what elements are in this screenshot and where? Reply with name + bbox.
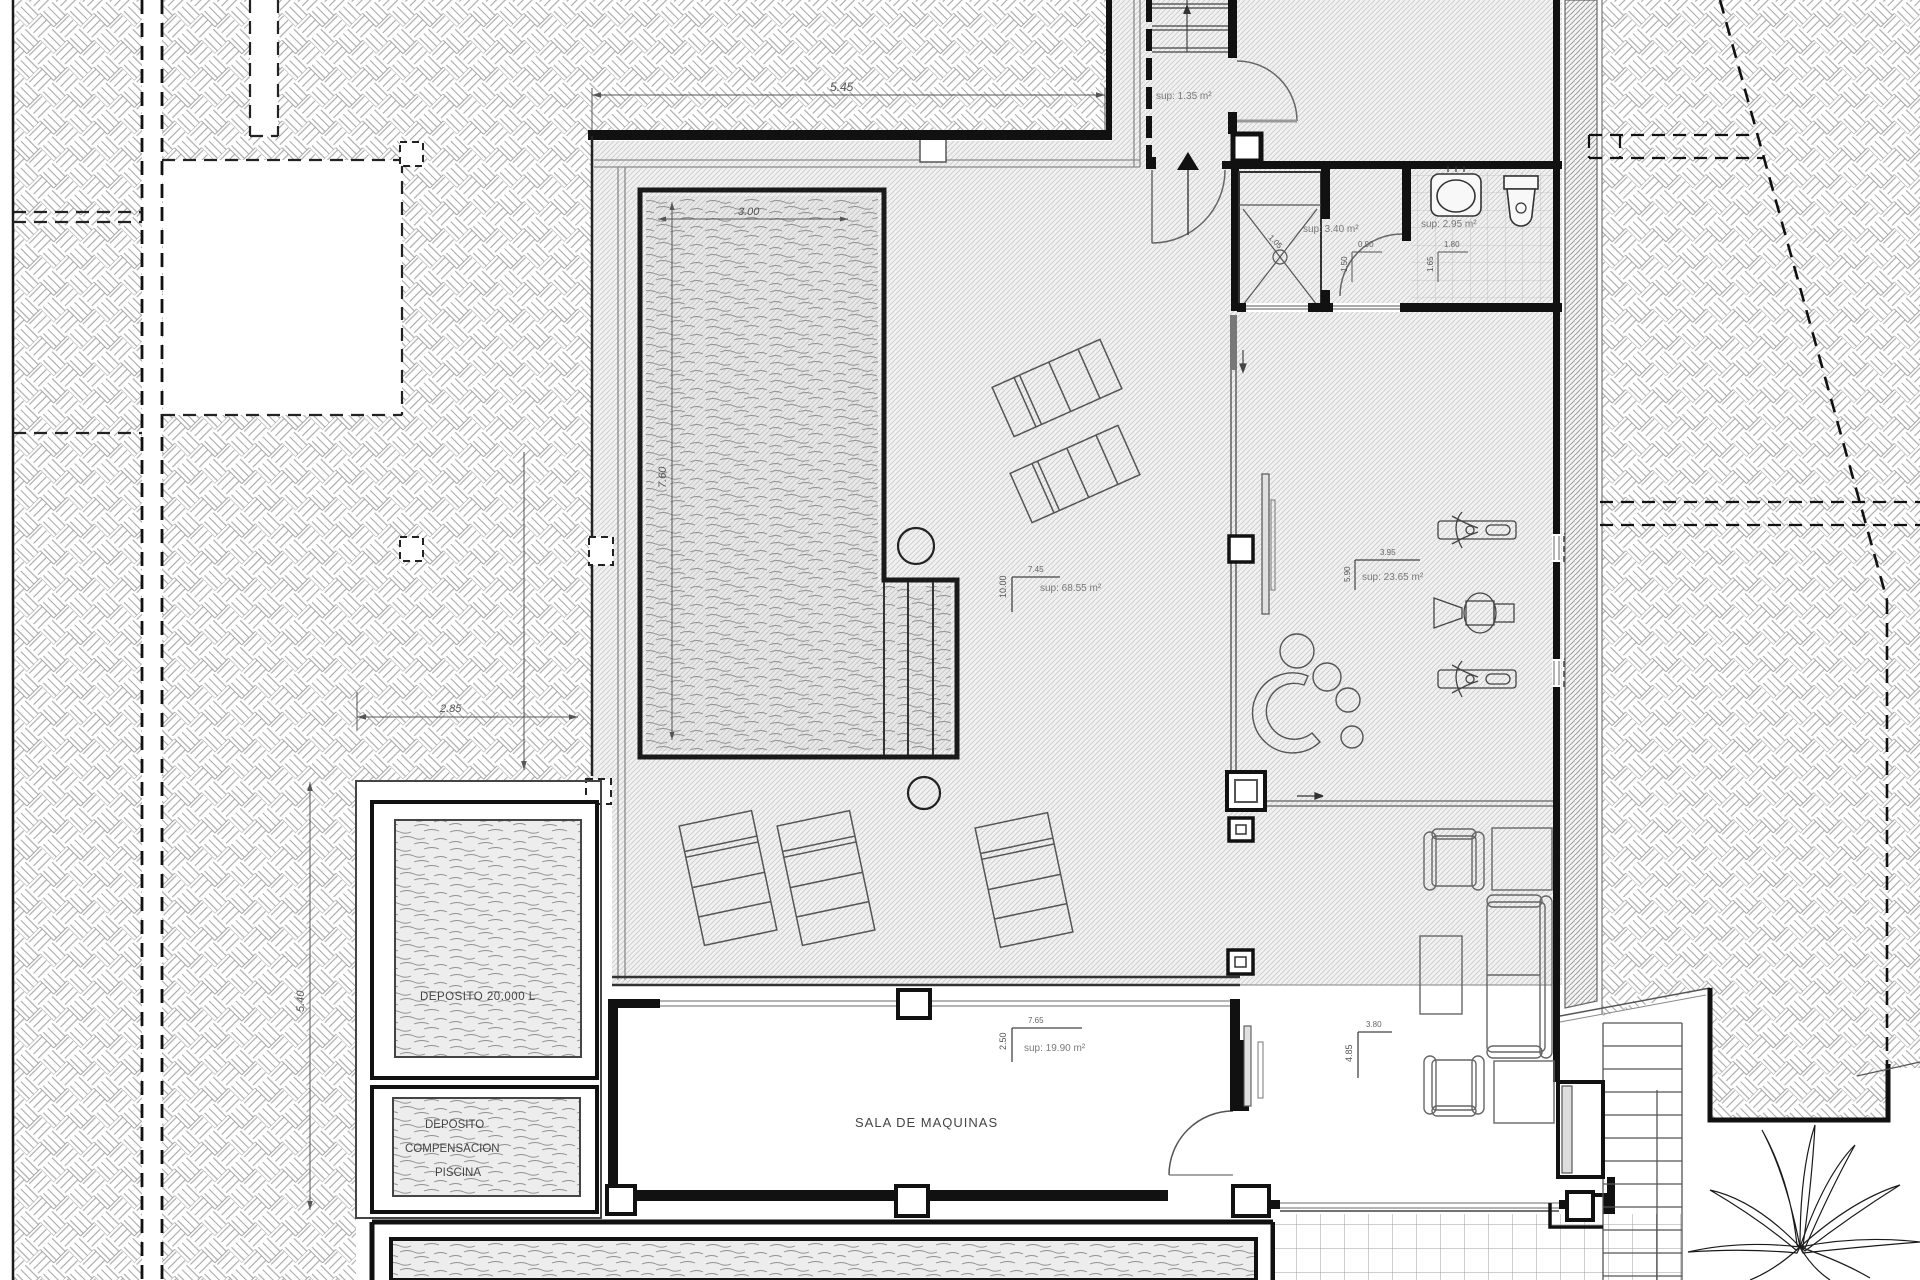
svg-text:7.60: 7.60 <box>657 466 669 488</box>
svg-text:1.80: 1.80 <box>1444 240 1460 249</box>
svg-text:5.45: 5.45 <box>830 80 854 94</box>
svg-text:3.80: 3.80 <box>1366 1020 1382 1029</box>
svg-text:0.90: 0.90 <box>1358 240 1374 249</box>
svg-text:7.45: 7.45 <box>1028 565 1044 574</box>
svg-text:sup: 3.40 m²: sup: 3.40 m² <box>1303 224 1359 235</box>
svg-text:10.00: 10.00 <box>998 575 1008 598</box>
svg-text:2.85: 2.85 <box>439 703 462 715</box>
svg-text:3.95: 3.95 <box>1380 548 1396 557</box>
svg-text:sup: 19.90 m²: sup: 19.90 m² <box>1024 1043 1086 1054</box>
svg-text:DEPOSITO: DEPOSITO <box>425 1119 484 1131</box>
svg-text:3.00: 3.00 <box>738 206 760 218</box>
svg-text:2.50: 2.50 <box>998 1032 1008 1050</box>
svg-text:PISCINA: PISCINA <box>435 1167 481 1179</box>
svg-text:1.50: 1.50 <box>1340 256 1349 272</box>
svg-text:COMPENSACION: COMPENSACION <box>405 1143 500 1155</box>
svg-text:sup: 23.65 m²: sup: 23.65 m² <box>1362 572 1424 583</box>
svg-text:SALA DE MAQUINAS: SALA DE MAQUINAS <box>855 1115 998 1130</box>
svg-text:1.65: 1.65 <box>1426 256 1435 272</box>
svg-text:7.65: 7.65 <box>1028 1016 1044 1025</box>
svg-text:sup: 2.95 m²: sup: 2.95 m² <box>1421 219 1477 230</box>
svg-text:5.90: 5.90 <box>1343 566 1352 582</box>
svg-text:sup: 68.55 m²: sup: 68.55 m² <box>1040 583 1102 594</box>
svg-text:DEPOSITO 20.000 L: DEPOSITO 20.000 L <box>420 991 536 1003</box>
svg-text:5.40: 5.40 <box>295 990 307 1012</box>
svg-text:4.85: 4.85 <box>1344 1044 1354 1062</box>
svg-text:sup: 1.35 m²: sup: 1.35 m² <box>1156 91 1212 102</box>
